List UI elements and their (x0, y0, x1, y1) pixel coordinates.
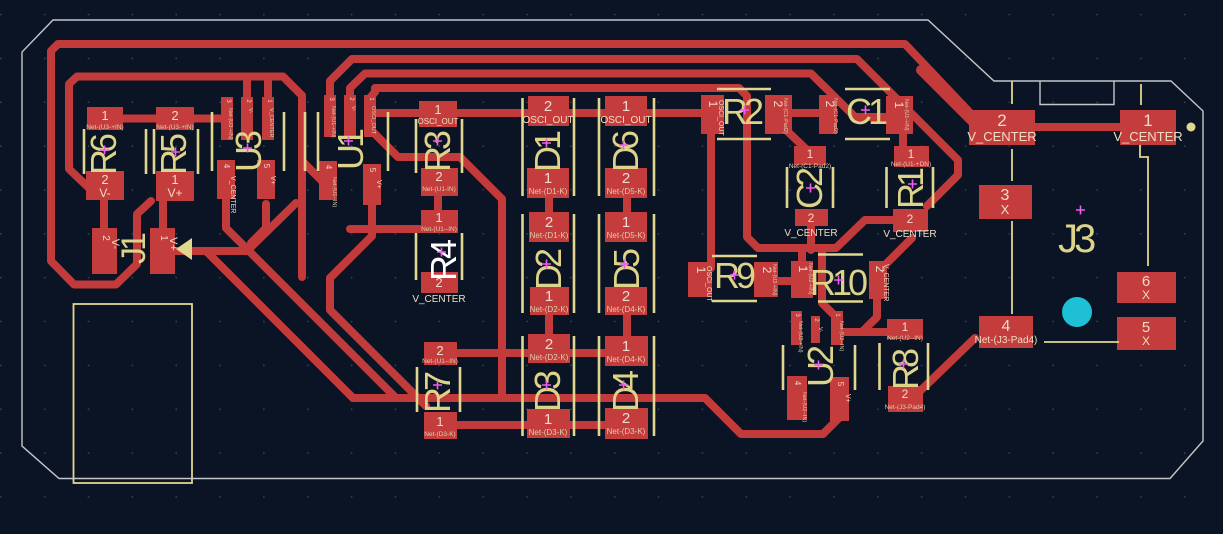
svg-text:V_CENTER: V_CENTER (268, 108, 274, 137)
svg-text:4: 4 (1002, 318, 1011, 335)
svg-text:Net-(U2--IN): Net-(U2--IN) (801, 392, 807, 422)
svg-text:V-: V- (247, 108, 253, 113)
svg-text:Net-(J3-Pad4): Net-(J3-Pad4) (885, 404, 926, 411)
svg-text:D6: D6 (605, 131, 646, 172)
svg-text:Net-(U1--IN): Net-(U1--IN) (422, 358, 458, 365)
svg-text:Net-(U2-+IN): Net-(U2-+IN) (797, 321, 803, 353)
svg-text:OSCI_OUT: OSCI_OUT (600, 115, 651, 126)
svg-text:1: 1 (622, 338, 630, 355)
svg-text:V+: V+ (844, 394, 851, 403)
svg-text:Net-(U1-+DN): Net-(U1-+DN) (891, 161, 931, 168)
svg-text:R1: R1 (890, 168, 931, 209)
svg-text:1: 1 (622, 98, 630, 115)
svg-text:U2: U2 (800, 346, 841, 387)
svg-text:OSCI_OUT: OSCI_OUT (705, 266, 712, 303)
svg-text:R4: R4 (423, 240, 464, 281)
svg-text:2: 2 (436, 343, 443, 358)
svg-text:2: 2 (171, 108, 178, 123)
svg-text:Net-(D4-K): Net-(D4-K) (607, 305, 646, 314)
svg-text:1: 1 (807, 147, 814, 161)
svg-text:OSCI_OUT: OSCI_OUT (418, 117, 459, 126)
svg-text:D4: D4 (605, 371, 646, 412)
svg-text:V-: V- (350, 106, 356, 111)
svg-text:Net-(U1-+IN): Net-(U1-+IN) (903, 99, 909, 131)
svg-text:Net-(U1-IN): Net-(U1-IN) (422, 186, 456, 193)
svg-text:Net-(D2-K): Net-(D2-K) (530, 353, 569, 362)
svg-text:V_CENTER: V_CENTER (229, 176, 236, 213)
svg-text:1: 1 (101, 108, 108, 123)
svg-text:OSCI_OUT: OSCI_OUT (370, 106, 376, 135)
svg-text:2: 2 (544, 98, 552, 115)
svg-text:1: 1 (902, 320, 909, 334)
svg-text:C1: C1 (846, 91, 887, 132)
svg-text:Net-(D4-K): Net-(D4-K) (607, 355, 646, 364)
svg-text:Net-(U2-+IN): Net-(U2-+IN) (771, 264, 777, 296)
svg-text:1: 1 (434, 102, 441, 117)
svg-text:Net-(U3-+IN): Net-(U3-+IN) (156, 124, 193, 131)
svg-text:D5: D5 (606, 249, 647, 290)
svg-text:Net-(D1-K): Net-(D1-K) (530, 231, 569, 240)
svg-text:Net-(D3-K): Net-(D3-K) (424, 431, 455, 438)
svg-text:1: 1 (1143, 111, 1152, 130)
svg-text:X: X (1142, 288, 1150, 302)
svg-text:2: 2 (545, 336, 553, 353)
svg-text:V+: V+ (269, 176, 276, 185)
svg-text:2: 2 (997, 111, 1006, 130)
svg-text:R7: R7 (417, 372, 458, 413)
svg-text:V_CENTER: V_CENTER (967, 129, 1036, 144)
svg-text:Net-(U1--IN): Net-(U1--IN) (331, 177, 337, 207)
svg-text:X: X (1001, 202, 1010, 217)
svg-text:U1: U1 (330, 129, 371, 170)
svg-text:1: 1 (544, 411, 552, 428)
svg-text:V_CENTER: V_CENTER (412, 294, 465, 305)
svg-text:Net-(D5-K): Net-(D5-K) (607, 187, 646, 196)
svg-text:V_CENTER: V_CENTER (1113, 129, 1182, 144)
svg-text:D3: D3 (527, 371, 568, 412)
svg-text:D1: D1 (527, 131, 568, 172)
svg-text:1: 1 (436, 414, 443, 429)
svg-text:1: 1 (908, 147, 915, 161)
svg-text:Net-(D3-K): Net-(D3-K) (529, 428, 568, 437)
svg-text:Net-(C1-Pad2): Net-(C1-Pad2) (789, 163, 831, 170)
svg-text:Net-(D2-K): Net-(D2-K) (530, 305, 569, 314)
svg-text:2: 2 (545, 214, 553, 231)
svg-text:J3: J3 (1058, 217, 1095, 261)
svg-text:D2: D2 (528, 249, 569, 290)
svg-text:R5: R5 (153, 134, 194, 175)
svg-text:OSCI_OUT: OSCI_OUT (522, 115, 573, 126)
svg-text:V+: V+ (167, 186, 182, 200)
svg-text:X: X (1142, 334, 1150, 348)
svg-text:R6: R6 (83, 134, 124, 175)
svg-text:Net-(U2--IN): Net-(U2--IN) (887, 335, 923, 342)
svg-text:R8: R8 (885, 349, 926, 390)
svg-text:Net-(U2--IN): Net-(U2--IN) (838, 321, 844, 351)
svg-text:U3: U3 (228, 131, 269, 172)
svg-text:Net-(U3-+IN): Net-(U3-+IN) (86, 124, 123, 131)
svg-text:2: 2 (808, 211, 815, 225)
svg-text:Net-(C1-Pad2): Net-(C1-Pad2) (782, 98, 788, 134)
svg-text:V-: V- (817, 327, 823, 332)
svg-text:V_CENTER: V_CENTER (882, 264, 889, 301)
svg-text:2: 2 (907, 212, 914, 226)
svg-text:Net-(C1-Pad2): Net-(C1-Pad2) (832, 98, 838, 134)
svg-text:Net-(D5-K): Net-(D5-K) (607, 231, 646, 240)
svg-text:Net-(U1--IN): Net-(U1--IN) (421, 226, 457, 233)
svg-text:J1: J1 (115, 233, 153, 264)
svg-text:1: 1 (622, 214, 630, 231)
svg-text:V_CENTER: V_CENTER (883, 229, 936, 240)
svg-text:V+: V+ (375, 180, 382, 189)
svg-text:1: 1 (435, 210, 442, 225)
svg-text:V-: V- (99, 186, 110, 200)
svg-text:Net-(J3-Pad4): Net-(J3-Pad4) (975, 335, 1038, 346)
svg-text:R2: R2 (722, 91, 763, 132)
svg-text:V_CENTER: V_CENTER (784, 228, 837, 239)
svg-text:Net-(D3-K): Net-(D3-K) (607, 427, 646, 436)
svg-text:Net-(D1-K): Net-(D1-K) (529, 187, 568, 196)
